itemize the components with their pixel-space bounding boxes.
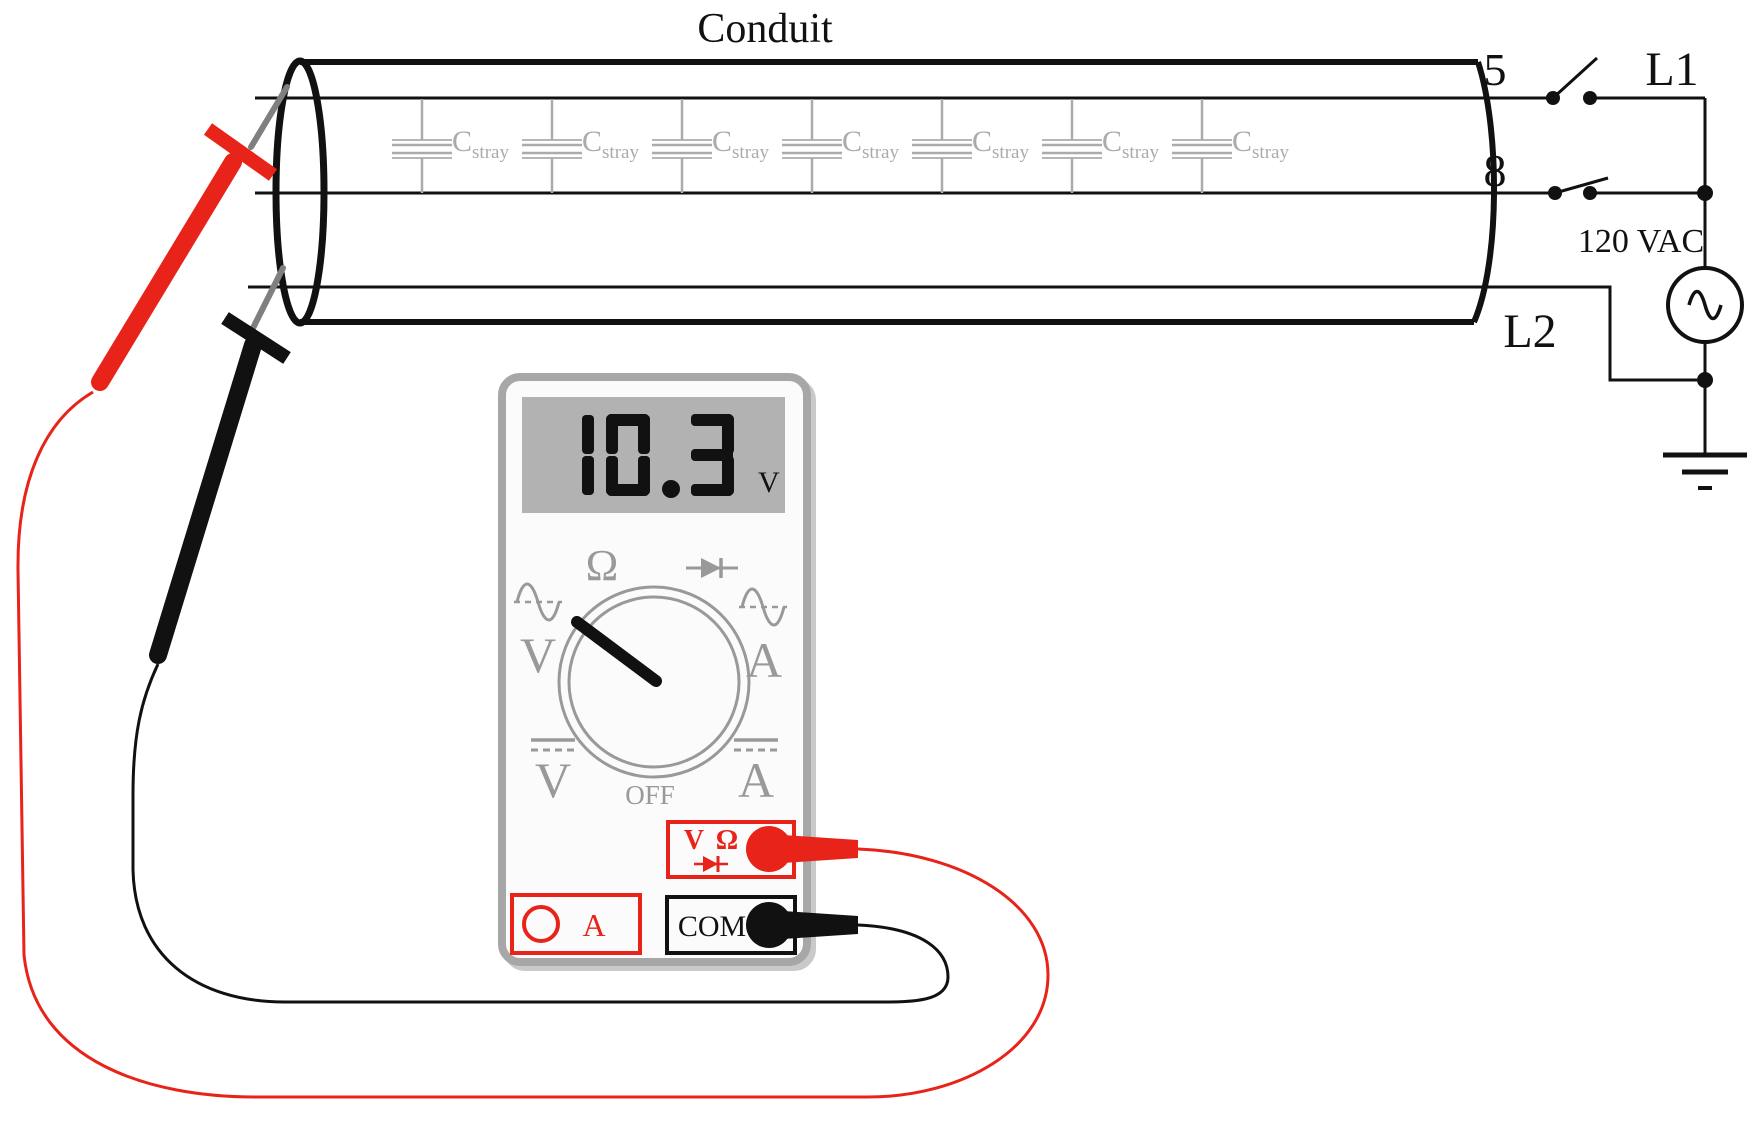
switch-wire8 [1548,178,1705,200]
multimeter: V Ω V A [502,377,858,967]
dc-volts-letter: V [535,752,571,808]
source-voltage-label: 120 VAC [1578,223,1704,260]
switch-wire8-blade [1555,178,1608,193]
black-probe-needle [252,268,283,330]
ac-amps-letter: A [746,632,782,688]
ground-symbol [1663,455,1747,488]
red-plug [746,826,792,872]
ac-source [1668,268,1742,342]
black-plug-stub [783,911,858,939]
supply-circuit: 5 8 L1 L2 120 VAC [1484,43,1748,488]
display-segment [722,415,734,454]
meter-display [522,397,785,513]
display-segment [582,415,594,454]
stray-capacitor: Cstray [392,99,509,193]
display-segment [606,456,618,495]
stray-capacitor: Cstray [522,99,639,193]
stray-capacitance-label: Cstray [1102,125,1159,163]
stray-capacitance-label: Cstray [582,125,639,163]
com-jack-label: COM [678,910,746,943]
display-segment [691,484,733,496]
wire-8-label: 8 [1484,145,1507,196]
jack-v-label: V [684,825,704,856]
stray-capacitance-label: Cstray [1232,125,1289,163]
stray-capacitors: Cstray Cstray Cstray Cstray [392,99,1289,193]
stray-capacitance-label: Cstray [842,125,899,163]
black-plug [746,902,792,948]
jack-ohm-label: Ω [716,825,738,856]
l1-label: L1 [1645,43,1698,96]
stray-capacitor: Cstray [782,99,899,193]
schematic-canvas: Conduit Cstray Cstray [0,0,1758,1129]
switch-wire5-left-contact [1546,91,1560,105]
display-decimal-point [662,480,680,498]
l2-label: L2 [1503,305,1556,358]
stray-capacitor: Cstray [912,99,1029,193]
dial-ohms-label: Ω [586,541,619,590]
wire-5-label: 5 [1484,44,1507,95]
black-probe [158,268,287,655]
stray-capacitance-label: Cstray [972,125,1029,163]
stray-capacitance-label: Cstray [452,125,509,163]
red-probe-guard [208,129,273,175]
dc-amps-letter: A [738,752,774,808]
display-segment [582,456,594,495]
stray-capacitance-label: Cstray [712,125,769,163]
stray-capacitor: Cstray [1172,99,1289,193]
conduit: Conduit [300,6,1494,322]
display-segment [638,415,650,454]
circuit-diagram: Conduit Cstray Cstray [0,0,1758,1129]
ac-sine-icon [1689,292,1721,319]
dial-off-label: OFF [625,780,675,810]
black-probe-body [158,345,253,655]
display-segment [691,449,733,461]
stray-capacitor: Cstray [652,99,769,193]
ac-volts-letter: V [520,627,556,683]
display-unit: V [758,466,780,499]
junction-wire8-l1 [1697,185,1713,201]
red-plug-stub [783,835,858,863]
conduit-title: Conduit [697,6,833,52]
junction-l2-ground [1697,372,1713,388]
switch-wire8-left-contact [1548,186,1562,200]
red-probe-body [100,162,233,382]
display-segment [606,415,618,454]
amps-jack-label: A [582,907,605,943]
stray-capacitor: Cstray [1042,99,1159,193]
